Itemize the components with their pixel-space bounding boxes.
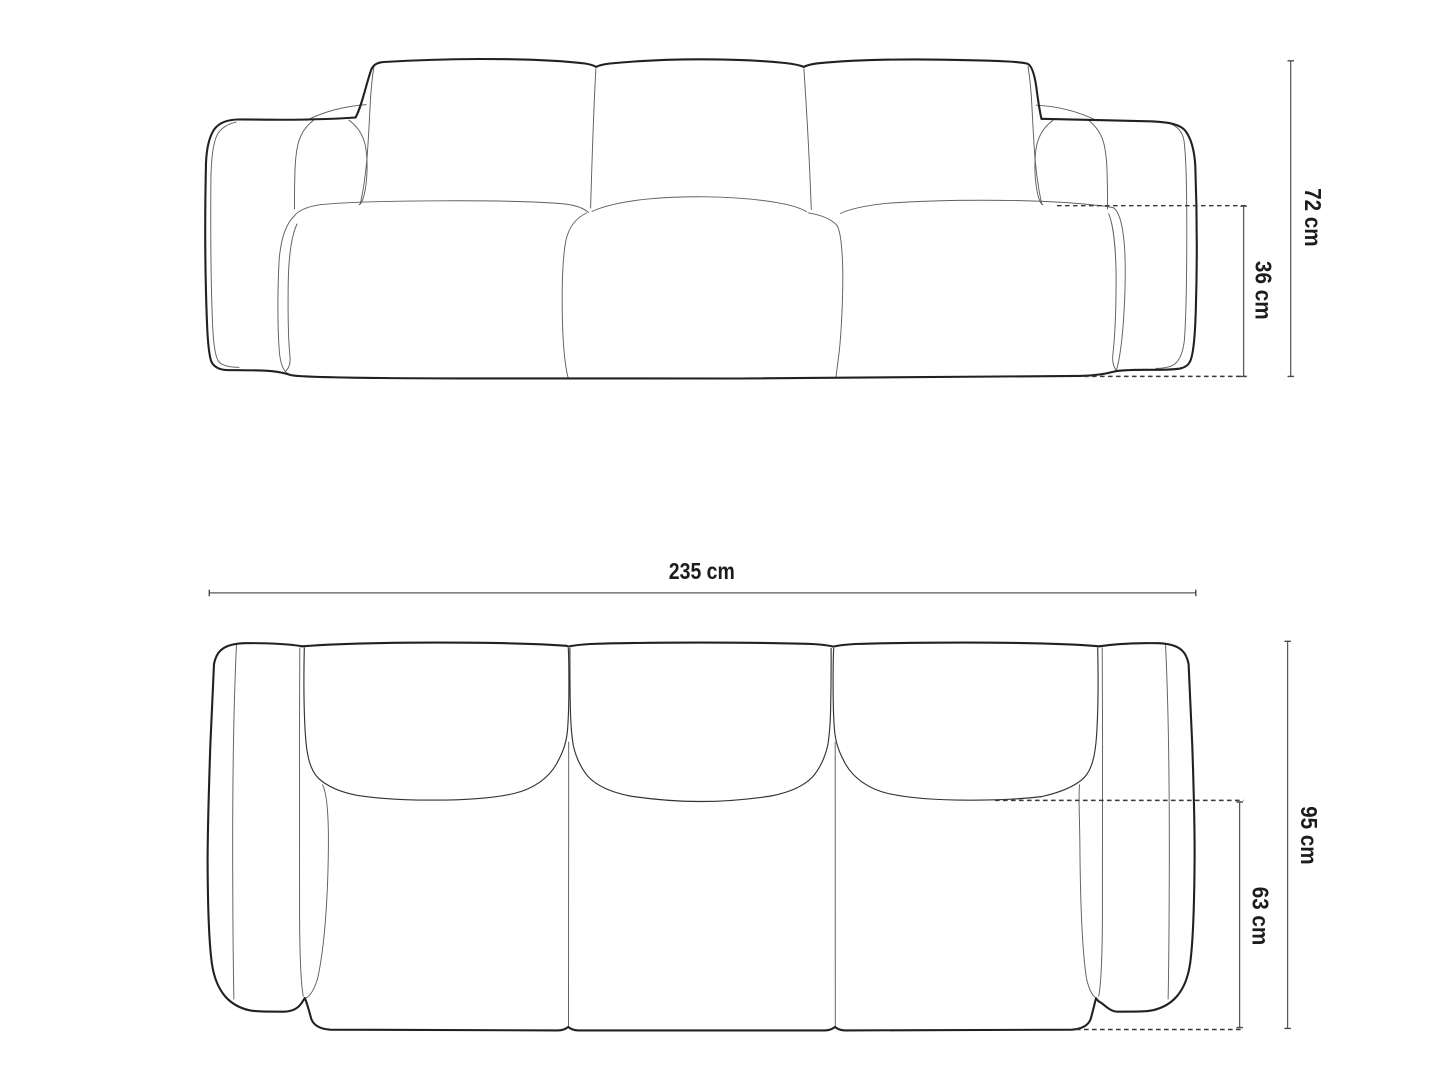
svg-text:36 cm: 36 cm [1250,261,1276,320]
svg-text:95 cm: 95 cm [1296,806,1322,865]
svg-text:235 cm: 235 cm [669,558,735,584]
svg-text:63 cm: 63 cm [1247,887,1273,946]
svg-text:72 cm: 72 cm [1300,188,1326,247]
